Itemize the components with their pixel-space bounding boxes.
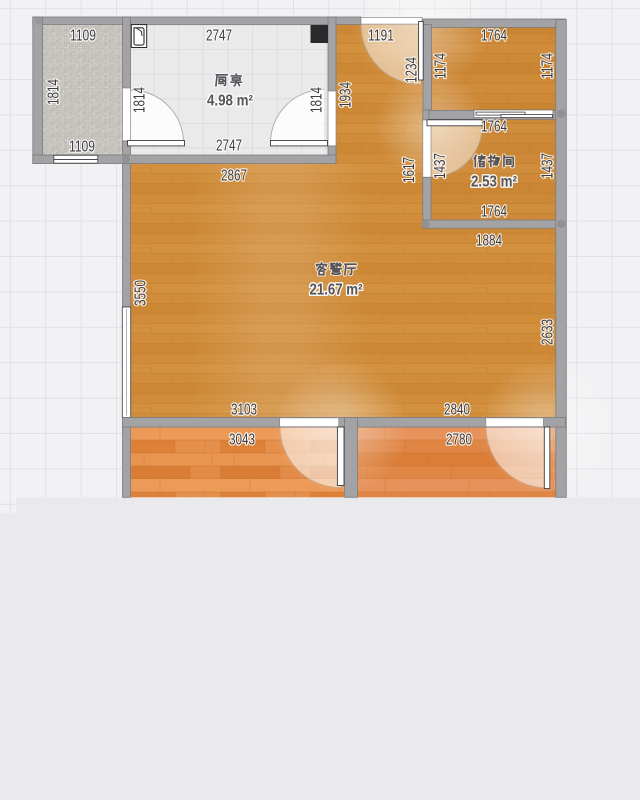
svg-text:2747: 2747: [206, 28, 232, 45]
svg-text:1109: 1109: [69, 139, 95, 156]
svg-text:2747: 2747: [216, 138, 242, 155]
svg-text:1884: 1884: [476, 233, 502, 250]
svg-text:1814: 1814: [309, 87, 326, 113]
svg-text:1814: 1814: [46, 79, 63, 105]
svg-text:2.53 m²: 2.53 m²: [471, 174, 517, 191]
svg-text:1764: 1764: [481, 28, 507, 45]
svg-text:1191: 1191: [368, 28, 394, 45]
svg-text:3103: 3103: [231, 402, 257, 419]
svg-text:3043: 3043: [229, 432, 255, 449]
svg-text:1234: 1234: [404, 57, 421, 83]
svg-text:1174: 1174: [540, 53, 557, 79]
svg-text:2633: 2633: [540, 319, 557, 345]
svg-text:1814: 1814: [132, 87, 149, 113]
svg-text:2867: 2867: [221, 168, 247, 185]
svg-text:1437: 1437: [432, 153, 449, 179]
svg-text:1764: 1764: [481, 119, 507, 136]
svg-text:2780: 2780: [446, 432, 472, 449]
svg-text:1934: 1934: [338, 82, 355, 108]
svg-text:3550: 3550: [133, 280, 150, 306]
svg-text:1174: 1174: [433, 53, 450, 79]
svg-text:2840: 2840: [444, 402, 470, 419]
svg-text:1617: 1617: [401, 157, 418, 183]
svg-text:1764: 1764: [481, 204, 507, 221]
svg-text:4.98 m²: 4.98 m²: [207, 93, 253, 110]
svg-text:1109: 1109: [70, 28, 96, 45]
svg-text:21.67 m²: 21.67 m²: [310, 282, 363, 299]
svg-text:1437: 1437: [540, 153, 557, 179]
